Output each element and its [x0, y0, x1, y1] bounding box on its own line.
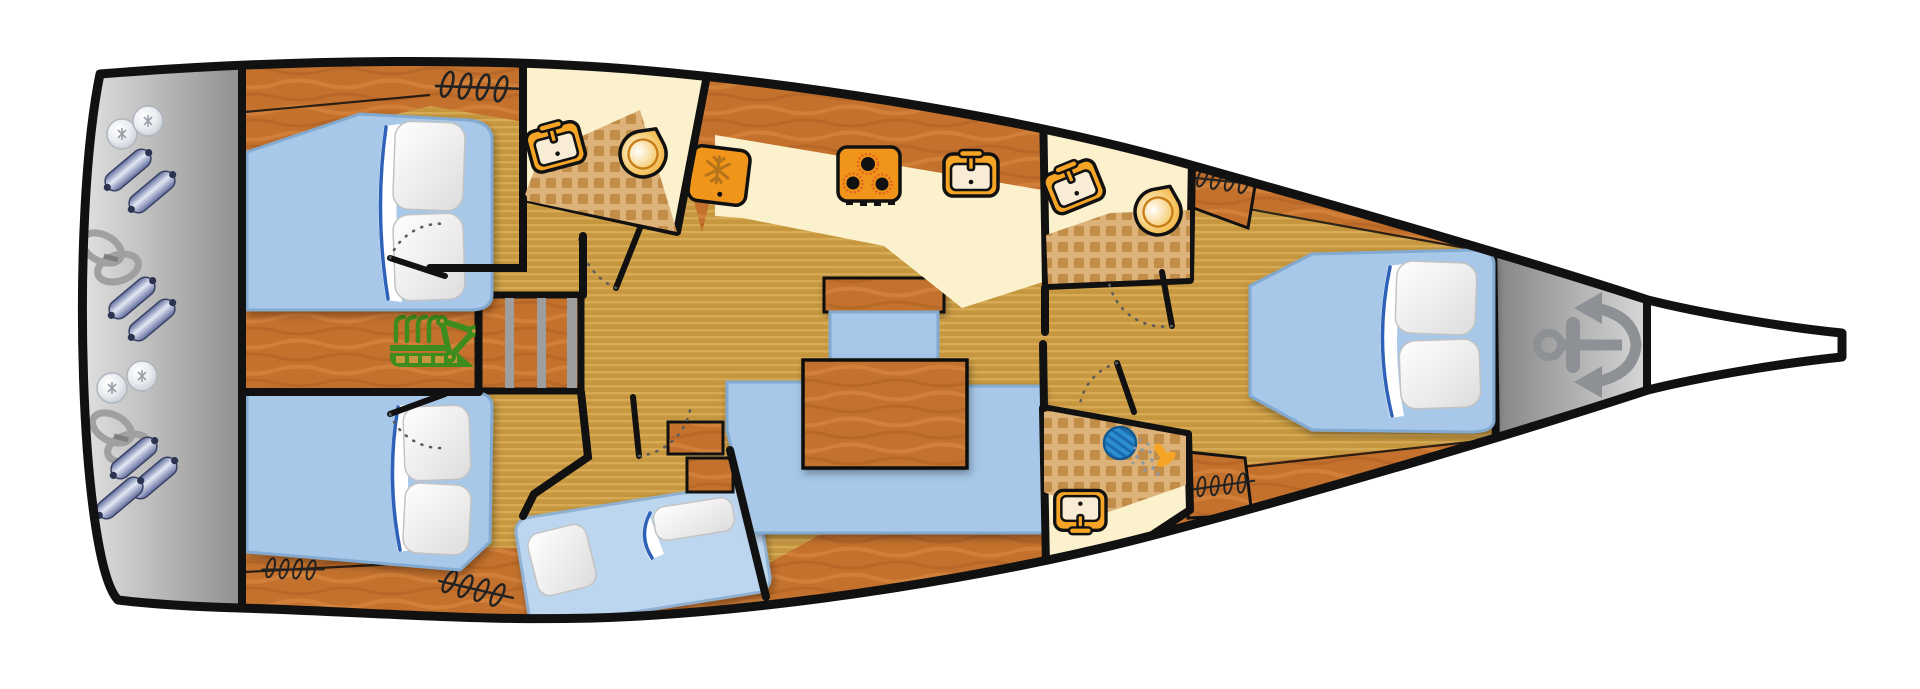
fridge-icon: [687, 145, 751, 207]
washbasin-icon: [1055, 490, 1106, 534]
buoy-ball-icon: [133, 106, 163, 136]
pillow: [393, 213, 466, 301]
stair-edge: [505, 298, 514, 388]
step-block: [687, 458, 733, 492]
pillow: [1395, 261, 1477, 336]
engine-compartment: [242, 304, 480, 394]
pillow: [392, 121, 465, 211]
stairs-frame: [479, 295, 581, 391]
stair-edge: [537, 298, 546, 388]
buoy-ball-icon: [127, 361, 157, 391]
pillow: [403, 405, 472, 481]
step-block: [668, 422, 723, 454]
aft-cabin-top-bed: [247, 114, 492, 310]
corridor-wall: [1043, 344, 1044, 408]
aft-cabin-bottom-bed: [247, 392, 492, 570]
companionway-stairs: [479, 295, 581, 391]
pillow: [402, 482, 472, 555]
pillow: [1399, 339, 1481, 410]
sailboat-deck-plan: [0, 0, 1920, 689]
shower-drain-icon: [1104, 427, 1136, 459]
aft-head: [523, 52, 708, 232]
stove-icon: [838, 147, 900, 206]
deck-plan-canvas: [0, 0, 1920, 689]
forward-cabin-bed: [1250, 250, 1494, 432]
bench-seat: [830, 312, 938, 362]
buoy-ball-icon: [97, 373, 127, 403]
stair-edge: [567, 298, 577, 388]
bench-backrest: [824, 278, 944, 312]
salon-table: [803, 360, 967, 468]
galley-sink-icon: [944, 150, 998, 196]
